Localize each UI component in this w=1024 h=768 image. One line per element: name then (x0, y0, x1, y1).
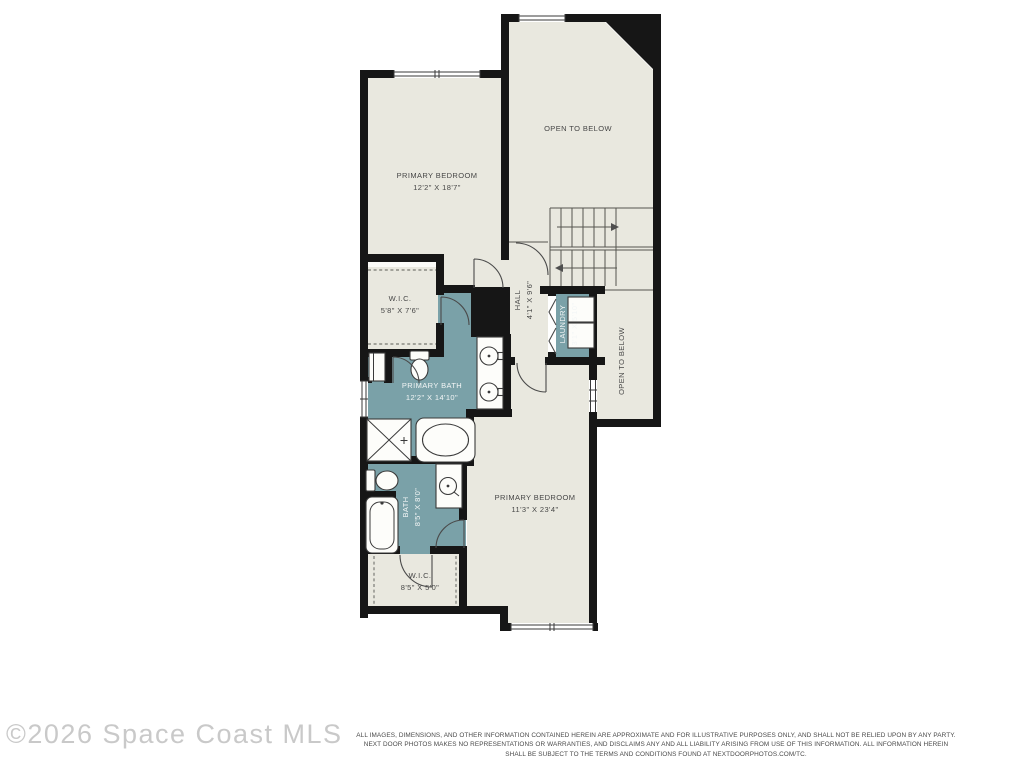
room-name: W.I.C. (381, 293, 419, 305)
room-name: PRIMARY BEDROOM (495, 492, 576, 504)
room-label-wic-lower: W.I.C. 8'5" X 5'0" (401, 570, 439, 594)
room-name: BATH (400, 488, 412, 526)
room-dims: 8'5" X 8'0" (412, 488, 424, 526)
room-name: PRIMARY BATH (402, 380, 462, 392)
room-name: W.I.C. (401, 570, 439, 582)
room-name: OPEN TO BELOW (616, 327, 628, 395)
room-dims: 5'8" X 7'6" (381, 305, 419, 317)
shower-icon (367, 419, 411, 461)
room-label-hall: HALL 4'1" X 9'6" (512, 281, 536, 319)
chase-void (471, 287, 510, 337)
vanity-sinks-icon (477, 337, 503, 409)
bathtub-icon (416, 418, 475, 462)
bifold-door (548, 296, 556, 354)
room-dims: 4'1" X 9'6" (524, 281, 536, 319)
floor-plan-drawing (0, 0, 1024, 768)
room-dims: 11'3" X 23'4" (495, 504, 576, 516)
disclaimer-line: ALL IMAGES, DIMENSIONS, AND OTHER INFORM… (276, 731, 1024, 740)
sink-counter-icon (436, 464, 462, 508)
toilet-icon (366, 470, 398, 491)
room-label-primary-bath: PRIMARY BATH 12'2" X 14'10" (402, 380, 462, 404)
room-dims: 3'1" X 5'10" (569, 302, 581, 345)
room-label-open-to-below-upper: OPEN TO BELOW (544, 123, 612, 135)
room-label-primary-bedroom-upper: PRIMARY BEDROOM 12'2" X 18'7" (397, 170, 478, 194)
room-label-laundry: LAUNDRY 3'1" X 5'10" (557, 302, 581, 345)
bathtub-icon (366, 497, 398, 553)
room-dims: 8'5" X 5'0" (401, 582, 439, 594)
room-name: LAUNDRY (557, 302, 569, 345)
floor-plan-page: PRIMARY BEDROOM 12'2" X 18'7" OPEN TO BE… (0, 0, 1024, 768)
disclaimer: ALL IMAGES, DIMENSIONS, AND OTHER INFORM… (276, 731, 1024, 759)
room-dims: 12'2" X 14'10" (402, 392, 462, 404)
room-dims: 12'2" X 18'7" (397, 182, 478, 194)
linen-closet-icon (369, 353, 385, 381)
room-label-open-to-below-right: OPEN TO BELOW (616, 327, 628, 395)
room-name: OPEN TO BELOW (544, 123, 612, 135)
room-label-bath: BATH 8'5" X 8'0" (400, 488, 424, 526)
room-name: PRIMARY BEDROOM (397, 170, 478, 182)
room-label-wic-upper: W.I.C. 5'8" X 7'6" (381, 293, 419, 317)
railing (589, 380, 597, 412)
room-name: HALL (512, 281, 524, 319)
disclaimer-line: NEXT DOOR PHOTOS MAKES NO REPRESENTATION… (276, 740, 1024, 749)
room-label-primary-bedroom-lower: PRIMARY BEDROOM 11'3" X 23'4" (495, 492, 576, 516)
disclaimer-line: SHALL BE SUBJECT TO THE TERMS AND CONDIT… (276, 750, 1024, 759)
